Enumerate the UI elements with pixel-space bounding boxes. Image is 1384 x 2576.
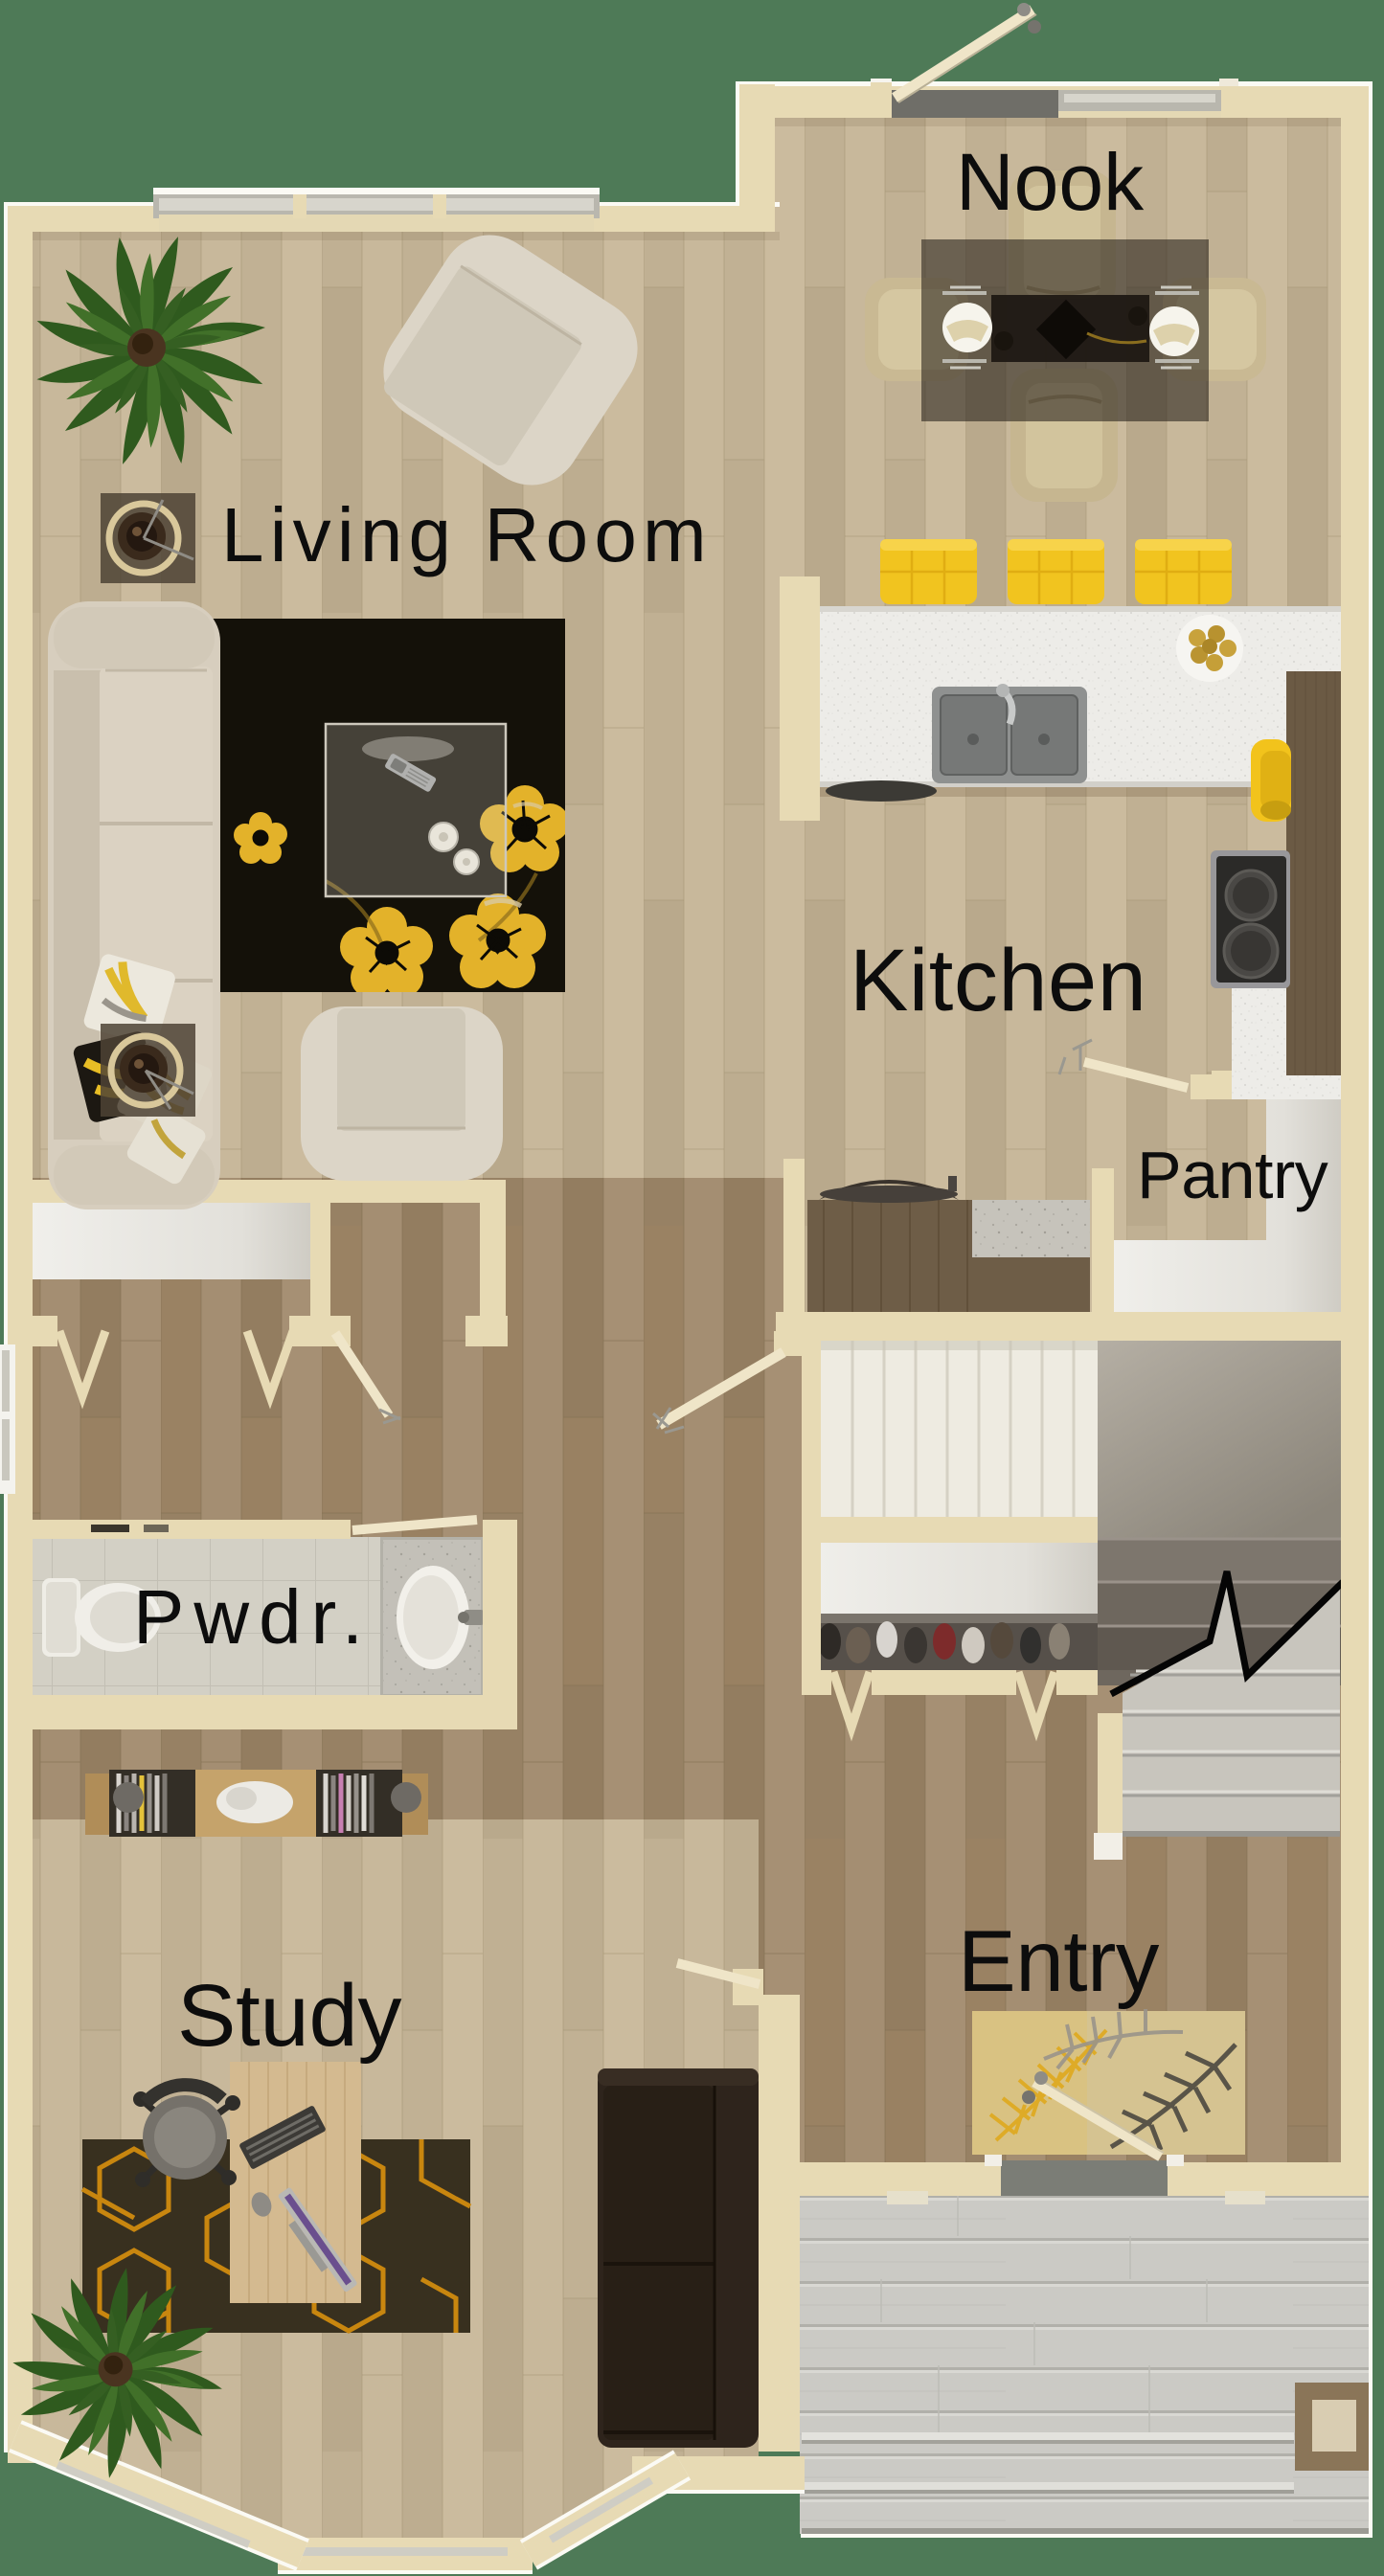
svg-text:Pwdr.: Pwdr.	[133, 1574, 373, 1660]
svg-text:Kitchen: Kitchen	[850, 932, 1146, 1029]
svg-text:Study: Study	[177, 1967, 401, 2065]
svg-text:Living Room: Living Room	[221, 492, 713, 577]
svg-text:Nook: Nook	[956, 137, 1145, 227]
svg-text:Entry: Entry	[958, 1913, 1160, 2010]
svg-text:Pantry: Pantry	[1137, 1138, 1328, 1212]
